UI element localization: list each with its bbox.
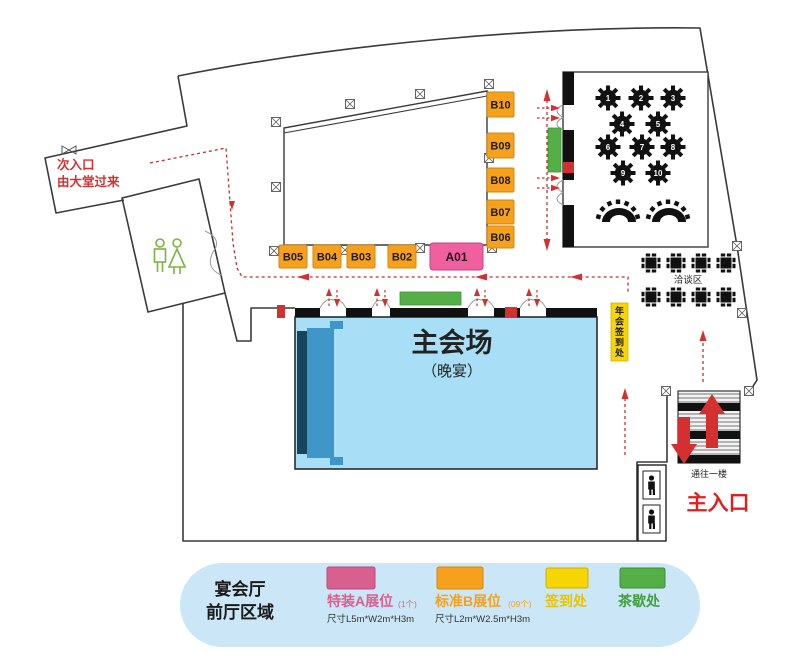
legend-swatch	[437, 567, 483, 589]
route-arrow-left	[570, 274, 582, 281]
legend-size: 尺寸L2m*W2.5m*H3m	[435, 613, 530, 625]
svg-text:8: 8	[671, 143, 676, 152]
legend-item-2: 签到处	[544, 568, 588, 609]
legend-swatch	[546, 568, 588, 588]
legend: 宴会厅 前厅区域 特装A展位(1个)尺寸L5m*W2m*H3m标准B展位(09个…	[180, 563, 700, 647]
negotiation-table-icon	[667, 288, 686, 307]
negotiation-area-label: 洽谈区	[674, 274, 703, 286]
svg-text:年: 年	[615, 305, 624, 316]
legend-count: (09个)	[508, 599, 532, 609]
banquet-door-arrow	[537, 175, 560, 181]
banquet-table-1: 1	[596, 86, 621, 111]
column-icon	[485, 80, 494, 89]
booth-b03: B03	[347, 245, 375, 268]
banquet-table-5: 5	[646, 112, 671, 137]
svg-text:A01: A01	[445, 250, 467, 264]
svg-text:B10: B10	[490, 100, 510, 112]
outer-wall-left-corridor	[45, 76, 187, 213]
column-icon	[738, 309, 747, 318]
svg-text:3: 3	[671, 94, 676, 103]
banquet-table-10: 10	[646, 161, 671, 186]
wall-red-marker	[277, 305, 285, 318]
negotiation-table-icon	[642, 288, 661, 307]
svg-text:5: 5	[656, 120, 661, 129]
negotiation-table-icon	[717, 254, 736, 273]
booth-b10: B10	[487, 92, 514, 117]
banquet-table-8: 8	[661, 135, 686, 160]
banquet-table-2: 2	[629, 86, 654, 111]
negotiation-table-icon	[692, 288, 711, 307]
column-icon	[346, 100, 355, 109]
svg-text:2: 2	[639, 94, 644, 103]
secondary-entrance-label-1: 次入口	[57, 157, 95, 172]
booth-b02: B02	[388, 245, 416, 268]
svg-text:B08: B08	[490, 175, 510, 187]
booth-b09: B09	[487, 133, 514, 158]
banquet-table-3: 3	[661, 86, 686, 111]
banquet-table-6: 6	[596, 135, 621, 160]
main-hall-title: 主会场	[412, 328, 493, 358]
route-arrow-up	[700, 330, 707, 341]
route-arrow-left	[297, 274, 309, 281]
elevators	[638, 465, 666, 541]
legend-item-3: 茶歇处	[617, 568, 665, 609]
stairs-label: 通往一楼	[691, 468, 727, 479]
tea-break-zone-banquet	[548, 128, 561, 172]
negotiation-table-icon	[692, 254, 711, 273]
booth-b07: B07	[487, 200, 514, 224]
column-icon	[416, 90, 425, 99]
banquet-door-arrow	[537, 115, 560, 121]
door-arrow-pair	[374, 288, 388, 307]
banquet-table-4: 4	[610, 112, 635, 137]
svg-text:会: 会	[615, 316, 625, 327]
column-icon	[733, 242, 742, 251]
negotiation-table-icon	[717, 288, 736, 307]
tea-break-zone-top	[400, 292, 461, 305]
door-arrow-pair	[474, 288, 488, 307]
stairs	[671, 391, 740, 464]
banquet-table-9: 9	[611, 161, 636, 186]
svg-text:B06: B06	[490, 232, 510, 244]
door-arrow-pair	[326, 288, 340, 307]
floor-plan-svg: 次入口 由大堂过来 主会场 （晚宴） 年会签到处	[0, 0, 800, 661]
svg-text:7: 7	[640, 143, 645, 152]
svg-text:9: 9	[621, 169, 626, 178]
banquet-hall-floor-plan: 次入口 由大堂过来 主会场 （晚宴） 年会签到处	[0, 0, 800, 661]
booth-a01: A01	[430, 243, 483, 270]
negotiation-table-icon	[642, 254, 661, 273]
legend-label: 签到处	[544, 593, 588, 609]
restroom-icons	[155, 239, 186, 274]
svg-text:10: 10	[654, 169, 663, 178]
svg-text:B03: B03	[351, 252, 371, 264]
svg-text:B07: B07	[490, 207, 510, 219]
legend-area-title-1: 宴会厅	[215, 579, 266, 599]
svg-text:签: 签	[614, 326, 625, 337]
svg-text:B04: B04	[317, 252, 338, 264]
legend-area-title-2: 前厅区域	[206, 602, 274, 622]
svg-text:B09: B09	[490, 141, 510, 153]
door-arrow-pair	[526, 288, 540, 307]
booth-b06: B06	[487, 226, 514, 248]
svg-text:B05: B05	[283, 252, 303, 264]
main-hall-subtitle: （晚宴）	[422, 362, 482, 380]
column-icon	[662, 387, 671, 396]
banquet-table-7: 7	[630, 135, 655, 160]
column-icon	[272, 183, 281, 192]
column-icon	[270, 247, 279, 256]
svg-text:处: 处	[614, 347, 625, 358]
secondary-entrance-label-2: 由大堂过来	[57, 174, 120, 189]
column-icon	[416, 244, 425, 253]
main-entrance-label: 主入口	[687, 492, 750, 515]
legend-label: 茶歇处	[617, 593, 661, 609]
route-arrow-up	[622, 388, 629, 399]
legend-label: 标准B展位	[434, 593, 501, 609]
booth-b08: B08	[487, 168, 514, 192]
route-arrow-left	[475, 274, 487, 281]
svg-text:B02: B02	[392, 252, 412, 264]
negotiation-table-icon	[667, 254, 686, 273]
route-arrow-down	[544, 239, 551, 251]
svg-text:4: 4	[620, 120, 625, 129]
booth-b04: B04	[313, 245, 341, 268]
column-icon	[272, 118, 281, 127]
svg-text:6: 6	[606, 143, 611, 152]
legend-count: (1个)	[398, 599, 417, 609]
svg-text:到: 到	[615, 337, 624, 348]
column-icon	[745, 387, 754, 396]
checkin-desk-tag-text: 年会签到处	[614, 305, 625, 358]
legend-label: 特装A展位	[327, 593, 393, 609]
route-arrow-up	[544, 89, 551, 101]
legend-size: 尺寸L5m*W2m*H3m	[327, 613, 414, 625]
booth-b05: B05	[279, 245, 307, 268]
legend-swatch	[327, 567, 375, 589]
legend-swatch	[620, 568, 665, 588]
svg-text:1: 1	[606, 94, 611, 103]
